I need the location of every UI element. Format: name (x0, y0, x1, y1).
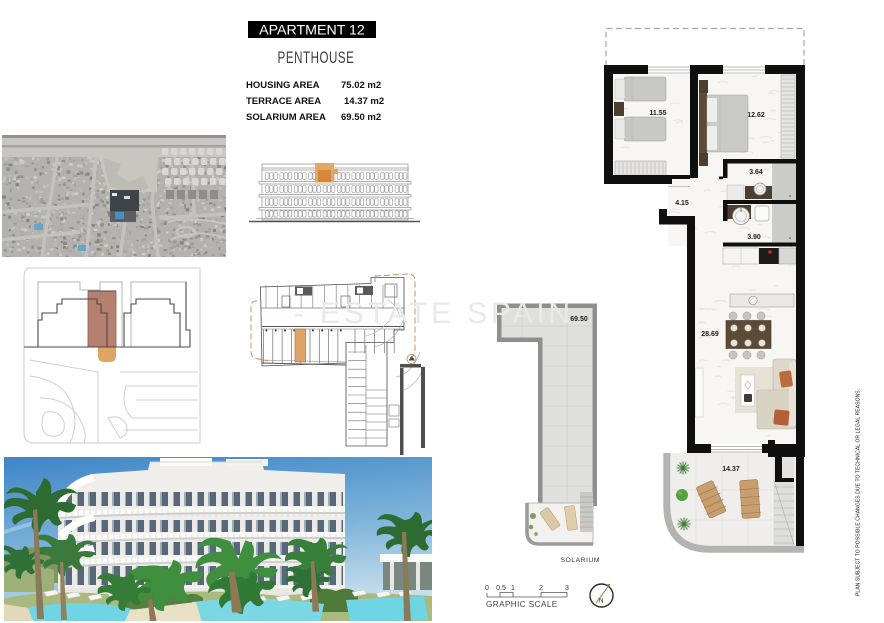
svg-text:- ESTATE SPAIN: - ESTATE SPAIN (294, 297, 574, 330)
svg-text:PENTHOUSE: PENTHOUSE (278, 49, 355, 68)
svg-text:14.37 m2: 14.37 m2 (344, 96, 384, 107)
svg-text:HOUSING AREA: HOUSING AREA (246, 80, 320, 91)
svg-text:2: 2 (539, 585, 543, 592)
svg-text:28.69: 28.69 (701, 331, 719, 338)
svg-text:69.50 m2: 69.50 m2 (341, 112, 381, 123)
svg-text:1: 1 (511, 585, 515, 592)
svg-text:3.90: 3.90 (747, 234, 761, 241)
svg-text:11.55: 11.55 (649, 110, 666, 117)
svg-text:GRAPHIC SCALE: GRAPHIC SCALE (486, 600, 558, 609)
svg-text:N: N (599, 598, 603, 605)
svg-text:4.15: 4.15 (675, 200, 689, 207)
svg-text:12.62: 12.62 (747, 112, 765, 119)
svg-text:3: 3 (565, 585, 569, 592)
svg-text:14.37: 14.37 (722, 466, 740, 473)
svg-text:SOLARIUM: SOLARIUM (560, 557, 600, 564)
svg-text:75.02 m2: 75.02 m2 (341, 80, 381, 91)
svg-text:3.64: 3.64 (749, 169, 763, 176)
svg-text:APARTMENT 12: APARTMENT 12 (259, 23, 365, 39)
svg-text:0: 0 (485, 585, 489, 592)
svg-text:SOLARIUM AREA: SOLARIUM AREA (246, 112, 326, 123)
svg-text:0.5: 0.5 (496, 585, 506, 592)
svg-text:PLAN SUBJECT TO POSSIBLE CHANG: PLAN SUBJECT TO POSSIBLE CHANGES DUE TO … (856, 389, 862, 596)
svg-text:TERRACE AREA: TERRACE AREA (246, 96, 321, 107)
